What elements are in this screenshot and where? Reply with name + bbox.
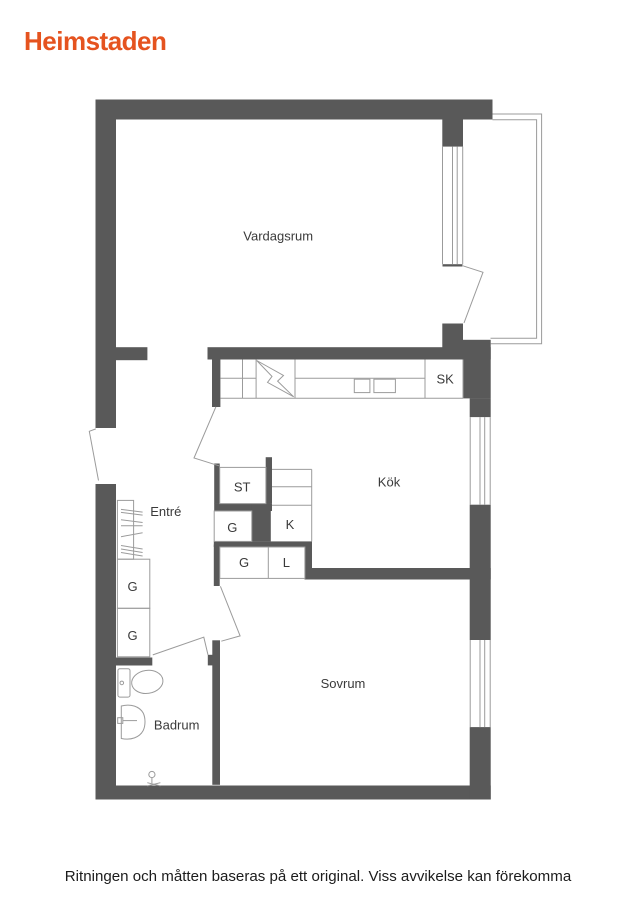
svg-text:K: K	[286, 517, 295, 532]
svg-text:G: G	[227, 520, 237, 535]
svg-text:Sovrum: Sovrum	[321, 676, 366, 691]
svg-text:SK: SK	[437, 372, 455, 387]
svg-text:L: L	[283, 555, 290, 570]
svg-text:G: G	[128, 579, 138, 594]
svg-text:Kök: Kök	[378, 475, 401, 490]
svg-text:G: G	[128, 628, 138, 643]
svg-text:Badrum: Badrum	[154, 717, 200, 732]
svg-text:ST: ST	[234, 480, 251, 495]
svg-text:G: G	[239, 555, 249, 570]
svg-text:Vardagsrum: Vardagsrum	[243, 229, 313, 244]
svg-text:Entré: Entré	[150, 504, 181, 519]
